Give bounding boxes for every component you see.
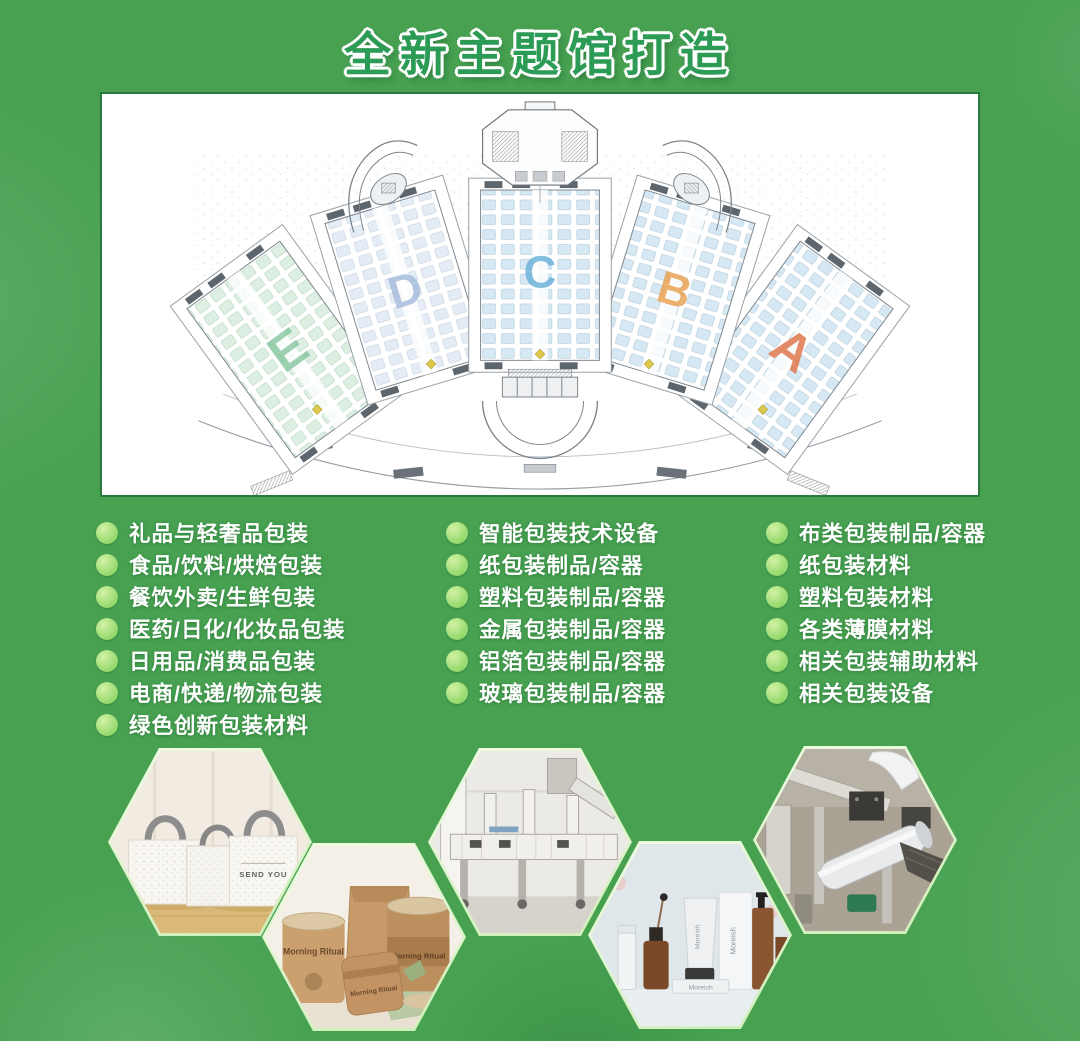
list-item: 礼品与轻奢品包装 xyxy=(96,521,345,544)
category-column-1: 礼品与轻奢品包装 食品/饮料/烘焙包装 餐饮外卖/生鲜包装 医药/日化/化妆品包… xyxy=(96,521,345,745)
bullet-dot-icon xyxy=(766,618,788,640)
list-item: 纸包装制品/容器 xyxy=(446,553,666,576)
list-item: 布类包装制品/容器 xyxy=(766,521,986,544)
category-column-2: 智能包装技术设备 纸包装制品/容器 塑料包装制品/容器 金属包装制品/容器 铝箔… xyxy=(446,521,666,713)
page-title: 全新主题馆打造 xyxy=(0,16,1080,85)
category-column-3: 布类包装制品/容器 纸包装材料 塑料包装材料 各类薄膜材料 相关包装辅助材料 相… xyxy=(766,521,986,713)
photo-packaging-machine xyxy=(431,751,629,933)
hall-C: C xyxy=(469,178,612,372)
list-item: 玻璃包装制品/容器 xyxy=(446,681,666,704)
photo-hex-cosmetics: Moreish Moreish Moreish xyxy=(588,841,792,1029)
list-item: 纸包装材料 xyxy=(766,553,986,576)
photo-hex-packaging-machine xyxy=(428,748,632,936)
jar-label-text: Morning Ritual xyxy=(283,946,344,956)
bullet-dot-icon xyxy=(446,682,468,704)
list-item: 绿色创新包装材料 xyxy=(96,713,345,736)
floor-plan-panel: E A D xyxy=(100,92,980,497)
list-item: 塑料包装制品/容器 xyxy=(446,585,666,608)
list-item: 日用品/消费品包装 xyxy=(96,649,345,672)
list-item: 食品/饮料/烘焙包装 xyxy=(96,553,345,576)
bullet-dot-icon xyxy=(96,714,118,736)
bullet-dot-icon xyxy=(446,522,468,544)
poster: 全新主题馆打造 xyxy=(0,0,1080,1041)
bullet-dot-icon xyxy=(96,618,118,640)
photo-film-machine xyxy=(756,749,954,931)
list-item: 餐饮外卖/生鲜包装 xyxy=(96,585,345,608)
bullet-dot-icon xyxy=(766,682,788,704)
bullet-dot-icon xyxy=(96,586,118,608)
list-item: 金属包装制品/容器 xyxy=(446,617,666,640)
tube-label-text: Moreish xyxy=(695,925,702,949)
bullet-dot-icon xyxy=(766,650,788,672)
jar-label-text: Morning Ritual xyxy=(391,951,445,960)
photo-cosmetics: Moreish Moreish Moreish xyxy=(591,844,789,1026)
list-item: 各类薄膜材料 xyxy=(766,617,986,640)
photo-hex-film-machine xyxy=(753,746,957,934)
bullet-dot-icon xyxy=(446,618,468,640)
hall-label-C: C xyxy=(524,247,557,298)
list-item: 塑料包装材料 xyxy=(766,585,986,608)
bullet-dot-icon xyxy=(446,586,468,608)
bullet-dot-icon xyxy=(766,554,788,576)
bullet-dot-icon xyxy=(766,586,788,608)
floor-plan-map: E A D xyxy=(102,94,978,495)
bullet-dot-icon xyxy=(446,650,468,672)
bag-print-text: SEND YOU xyxy=(239,870,287,879)
list-item: 相关包装设备 xyxy=(766,681,986,704)
bullet-dot-icon xyxy=(96,522,118,544)
bullet-dot-icon xyxy=(96,650,118,672)
box-label-text: Moreish xyxy=(729,927,738,955)
list-item: 相关包装辅助材料 xyxy=(766,649,986,672)
bullet-dot-icon xyxy=(96,682,118,704)
list-item: 电商/快递/物流包装 xyxy=(96,681,345,704)
base-label-text: Moreish xyxy=(689,984,713,991)
bullet-dot-icon xyxy=(446,554,468,576)
list-item: 智能包装技术设备 xyxy=(446,521,666,544)
list-item: 铝箔包装制品/容器 xyxy=(446,649,666,672)
list-item: 医药/日化/化妆品包装 xyxy=(96,617,345,640)
bullet-dot-icon xyxy=(96,554,118,576)
bullet-dot-icon xyxy=(766,522,788,544)
